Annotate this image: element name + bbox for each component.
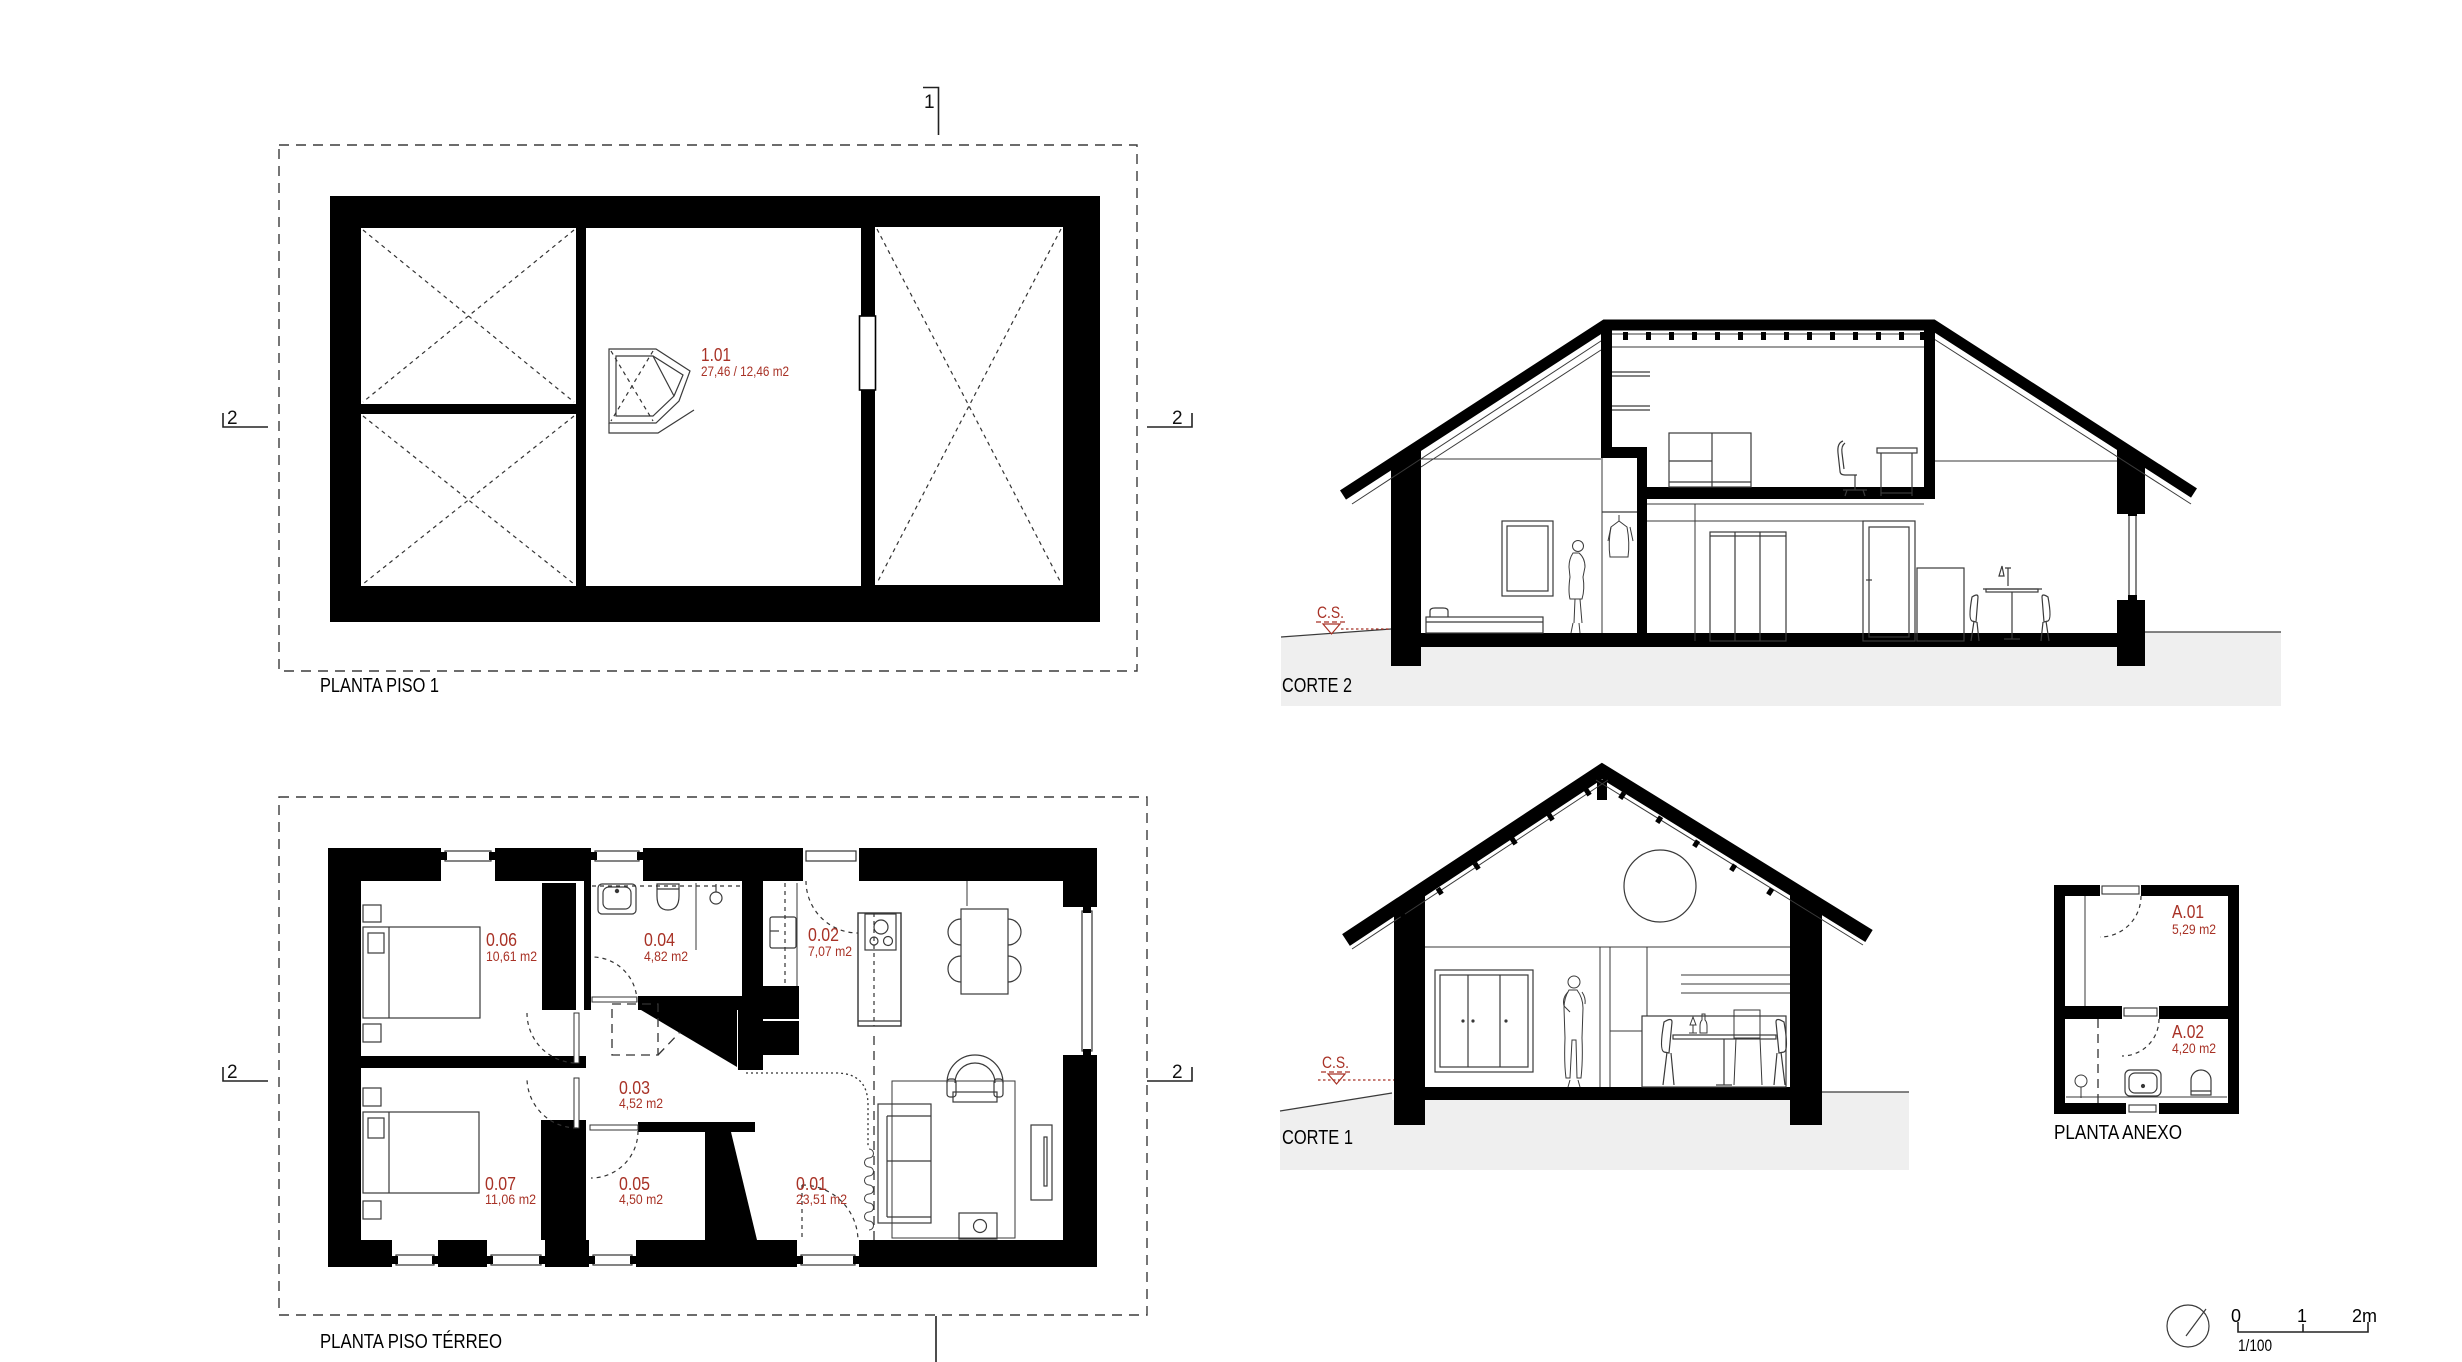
svg-text:A.01: A.01 — [2172, 901, 2204, 922]
svg-text:23,51 m2: 23,51 m2 — [796, 1192, 847, 1207]
svg-text:CORTE 1: CORTE 1 — [1282, 1126, 1353, 1149]
svg-text:0: 0 — [2231, 1306, 2241, 1326]
svg-text:2: 2 — [227, 408, 238, 429]
svg-text:1: 1 — [924, 92, 935, 113]
svg-text:0.04: 0.04 — [644, 929, 675, 950]
svg-text:27,46 / 12,46 m2: 27,46 / 12,46 m2 — [701, 364, 789, 379]
svg-text:0.01: 0.01 — [796, 1173, 827, 1194]
svg-text:4,82 m2: 4,82 m2 — [644, 949, 688, 964]
svg-text:0.07: 0.07 — [485, 1173, 516, 1194]
svg-text:C.S.: C.S. — [1322, 1053, 1349, 1072]
svg-text:CORTE 2: CORTE 2 — [1282, 674, 1352, 697]
svg-text:0.05: 0.05 — [619, 1173, 650, 1194]
svg-text:C.S.: C.S. — [1317, 603, 1344, 622]
svg-text:1.01: 1.01 — [701, 344, 731, 365]
svg-text:7,07 m2: 7,07 m2 — [808, 944, 852, 959]
svg-text:2m: 2m — [2352, 1306, 2377, 1326]
svg-text:PLANTA PISO 1: PLANTA PISO 1 — [320, 674, 439, 697]
svg-text:1: 1 — [2297, 1306, 2307, 1326]
svg-text:2: 2 — [227, 1062, 238, 1083]
svg-text:0.06: 0.06 — [486, 929, 517, 950]
svg-text:0.03: 0.03 — [619, 1077, 650, 1098]
svg-text:A.02: A.02 — [2172, 1021, 2204, 1042]
svg-text:2: 2 — [1172, 408, 1183, 429]
svg-text:1/100: 1/100 — [2238, 1336, 2272, 1355]
svg-text:5,29 m2: 5,29 m2 — [2172, 922, 2216, 937]
svg-text:10,61 m2: 10,61 m2 — [486, 949, 537, 964]
svg-text:0.02: 0.02 — [808, 924, 839, 945]
svg-text:PLANTA ANEXO: PLANTA ANEXO — [2054, 1121, 2182, 1144]
svg-text:4,52 m2: 4,52 m2 — [619, 1096, 663, 1111]
svg-text:4,50 m2: 4,50 m2 — [619, 1192, 663, 1207]
svg-text:PLANTA PISO TÉRREO: PLANTA PISO TÉRREO — [320, 1330, 502, 1353]
svg-text:11,06 m2: 11,06 m2 — [485, 1192, 536, 1207]
svg-text:2: 2 — [1172, 1062, 1183, 1083]
svg-text:4,20 m2: 4,20 m2 — [2172, 1041, 2216, 1056]
